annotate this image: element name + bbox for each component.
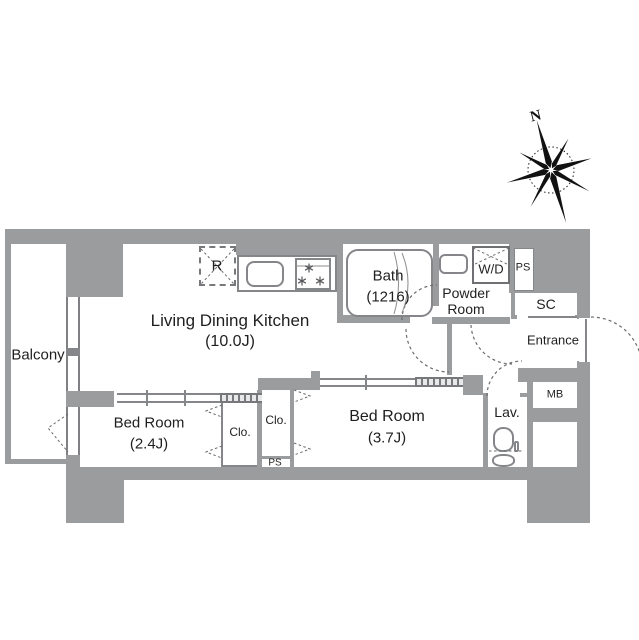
- compass-icon: [492, 108, 606, 235]
- powder-room-line1: Powder: [442, 285, 489, 301]
- wall-segment: [532, 408, 590, 422]
- ldk-label: Living Dining Kitchen: [151, 311, 310, 331]
- floor-plan: Balcony Living Dining Kitchen (10.0J) Ba…: [0, 0, 639, 640]
- powder-room-label: Powder Room: [442, 285, 489, 317]
- window: [66, 407, 80, 455]
- entrance-label: Entrance: [527, 334, 579, 349]
- sliding-door-tick: [365, 375, 367, 390]
- toilet-handle: [514, 441, 519, 452]
- wall-segment: [66, 455, 80, 467]
- wall-segment: [5, 229, 11, 464]
- lavatory-label: Lav.: [494, 404, 519, 420]
- balcony-label: Balcony: [11, 346, 64, 363]
- toilet-tank: [492, 454, 515, 467]
- bedroom-large-label: Bed Room: [349, 408, 425, 426]
- bedroom-small-label: Bed Room: [114, 414, 185, 431]
- wall-segment: [66, 480, 124, 523]
- sliding-door: [117, 393, 220, 403]
- bedroom-small-size: (2.4J): [130, 435, 168, 452]
- sliding-door-tick: [146, 390, 148, 406]
- wall-segment: [66, 391, 114, 407]
- wall-segment: [520, 393, 527, 397]
- wall-segment: [5, 459, 67, 464]
- shoe-closet-label: SC: [536, 296, 555, 312]
- wall-segment: [518, 368, 590, 382]
- wall-segment: [337, 244, 343, 322]
- pipe-space-top-label: PS: [516, 262, 531, 275]
- toilet-bowl: [493, 427, 514, 452]
- hatched-wall: [415, 377, 463, 387]
- wall-segment: [311, 371, 320, 390]
- closet2-label: Clo.: [265, 414, 286, 428]
- bedroom-large-size: (3.7J): [368, 429, 406, 446]
- window: [66, 297, 80, 391]
- pipe-space-bottom-label: PS: [268, 457, 281, 469]
- kitchen-sink: [246, 261, 284, 287]
- ldk-size: (10.0J): [205, 333, 255, 351]
- wall-segment: [433, 244, 439, 306]
- hatched-wall: [220, 393, 262, 403]
- door-arc: [591, 317, 639, 368]
- window-mullion: [66, 348, 80, 356]
- wall-segment: [236, 244, 337, 255]
- meter-box-label: MB: [547, 389, 564, 402]
- wall-segment: [66, 244, 123, 297]
- wall-segment: [258, 378, 312, 390]
- powder-room-line2: Room: [442, 301, 489, 317]
- wall-segment: [290, 386, 294, 467]
- entrance-door-leaf: [585, 319, 587, 362]
- washbasin: [439, 254, 468, 274]
- wall-segment: [447, 324, 452, 375]
- compass-north-label: N: [529, 107, 544, 126]
- sliding-door-tick: [184, 390, 186, 406]
- wall-segment: [483, 393, 488, 467]
- bath-label: Bath: [373, 267, 404, 284]
- sliding-door: [320, 378, 415, 387]
- wall-segment: [463, 375, 483, 395]
- storage-box: [533, 422, 577, 467]
- closet1-label: Clo.: [229, 426, 250, 440]
- wall-segment: [527, 480, 590, 523]
- bath-size: (1216): [366, 288, 409, 305]
- washer-dryer-label: W/D: [478, 263, 503, 278]
- refrigerator-label: R: [212, 257, 223, 274]
- wall-segment: [432, 317, 510, 324]
- stove: [295, 258, 331, 290]
- wall-segment: [8, 229, 590, 244]
- wall-segment: [66, 467, 590, 480]
